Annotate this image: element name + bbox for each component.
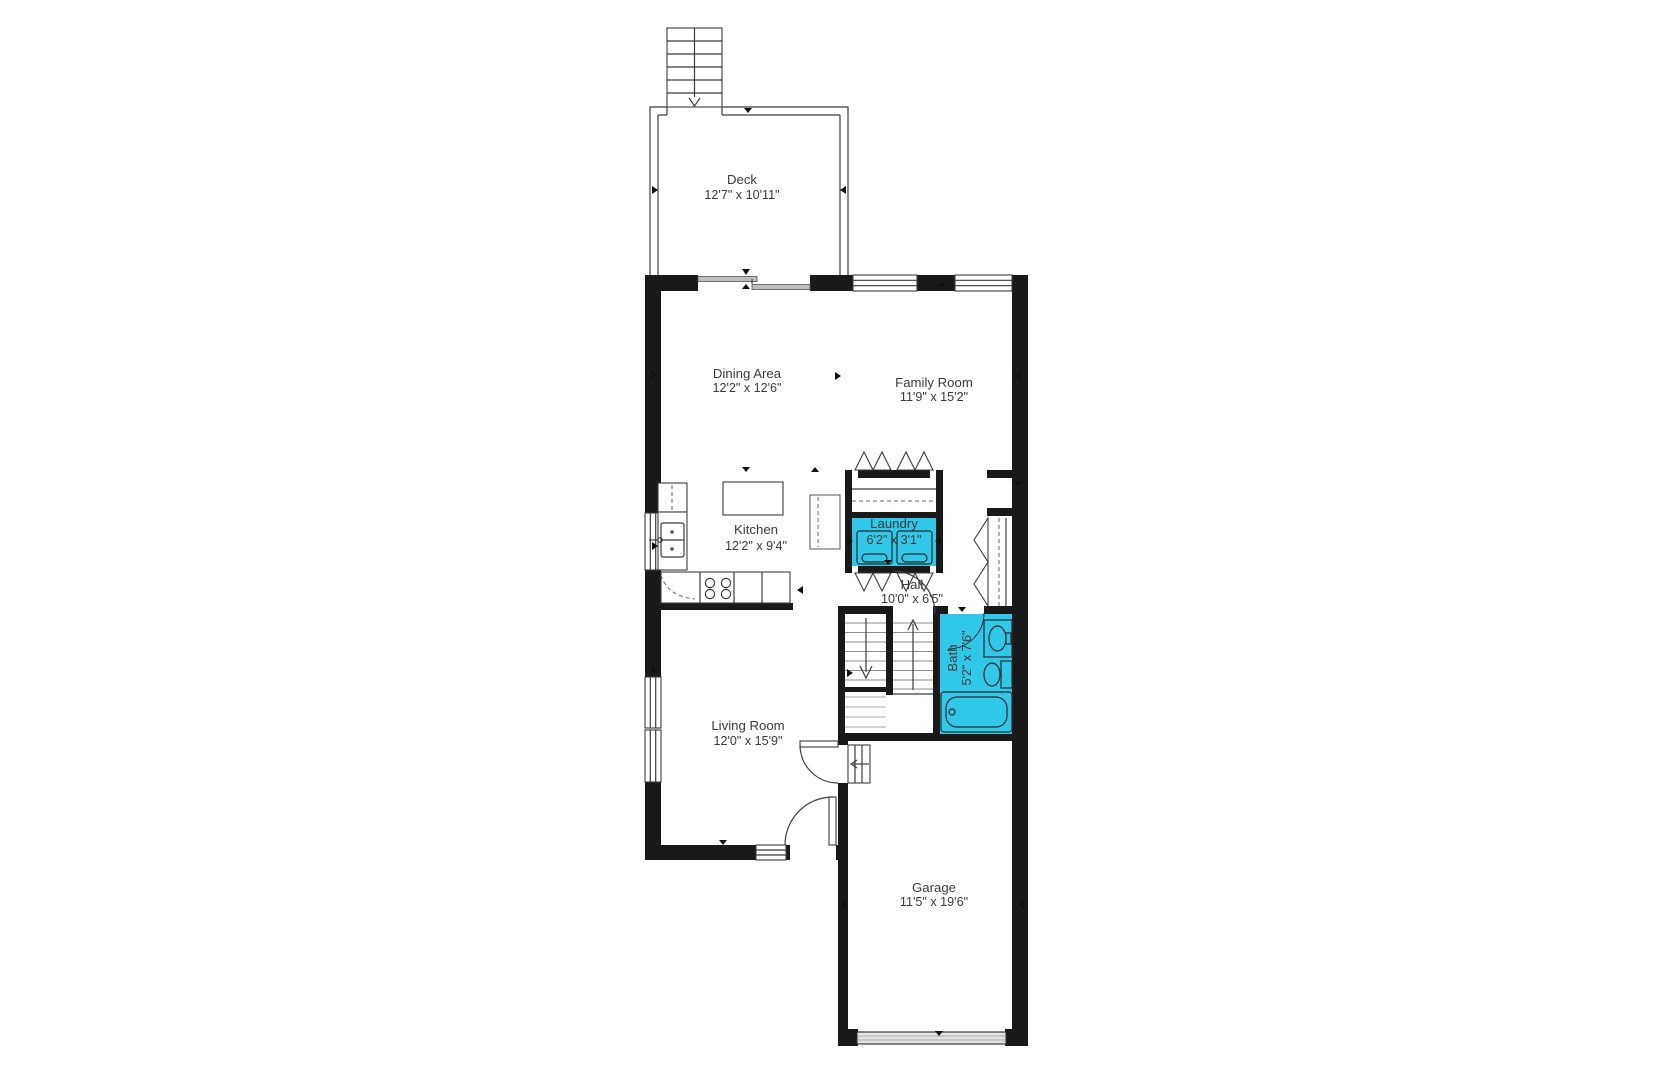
deck-label: Deck	[727, 172, 757, 187]
deck-area: Deck 12'7" x 10'11"	[650, 28, 848, 277]
floor-plan-drawing: Deck 12'7" x 10'11"	[0, 0, 1675, 1080]
kitchen-dims: 12'2" x 9'4"	[725, 539, 787, 553]
family-label: Family Room	[895, 375, 973, 390]
window-living-bottom	[756, 845, 786, 860]
dining-label: Dining Area	[713, 366, 782, 381]
living-label: Living Room	[711, 718, 784, 733]
kitchen-area: Kitchen 12'2" x 9'4"	[649, 482, 840, 603]
kitchen-island	[723, 482, 783, 515]
windows	[645, 275, 1012, 860]
laundry-label: Laundry	[870, 516, 918, 531]
laundry-dims: 6'2" x 3'1"	[866, 533, 921, 547]
bath-dims: 5'2" x 7'6"	[960, 630, 974, 685]
window-living-2	[645, 730, 661, 782]
bath-label: Bath	[945, 644, 960, 671]
bifold-doors-top	[855, 452, 933, 470]
bath-area: Bath 5'2" x 7'6"	[940, 613, 1012, 734]
living-room-area: Living Room 12'0" x 15'9"	[711, 718, 838, 845]
hall-closet	[974, 518, 1006, 606]
window-top-a	[853, 275, 917, 291]
garage-entry-steps	[848, 745, 870, 783]
pantry-cabinet	[810, 495, 840, 549]
living-dims: 12'0" x 15'9"	[713, 734, 782, 748]
window-living-1	[645, 677, 661, 728]
dining-dims: 12'2" x 12'6"	[712, 381, 781, 395]
family-room-area: Family Room 11'9" x 15'2"	[895, 375, 973, 404]
dining-area: Dining Area 12'2" x 12'6"	[712, 366, 781, 395]
window-top-b	[955, 275, 1012, 291]
garage-entry-door	[800, 741, 838, 783]
kitchen-label: Kitchen	[734, 522, 778, 537]
closet-bifold-1	[974, 518, 988, 562]
sliding-door	[698, 277, 810, 290]
garage-area: Garage 11'5" x 19'6"	[848, 745, 1006, 1044]
floor-plan: Deck 12'7" x 10'11"	[0, 0, 1675, 1080]
garage-dims: 11'5" x 19'6"	[900, 895, 968, 909]
family-dims: 11'9" x 15'2"	[900, 390, 968, 404]
hall-dims: 10'0" x 6'5"	[881, 592, 943, 606]
garage-label: Garage	[912, 880, 956, 895]
garage-door	[857, 1032, 1006, 1044]
closet-bifold-2	[974, 562, 988, 606]
front-door	[785, 797, 836, 845]
hall-label: Hall	[901, 577, 924, 592]
deck-dims: 12'7" x 10'11"	[704, 188, 779, 202]
